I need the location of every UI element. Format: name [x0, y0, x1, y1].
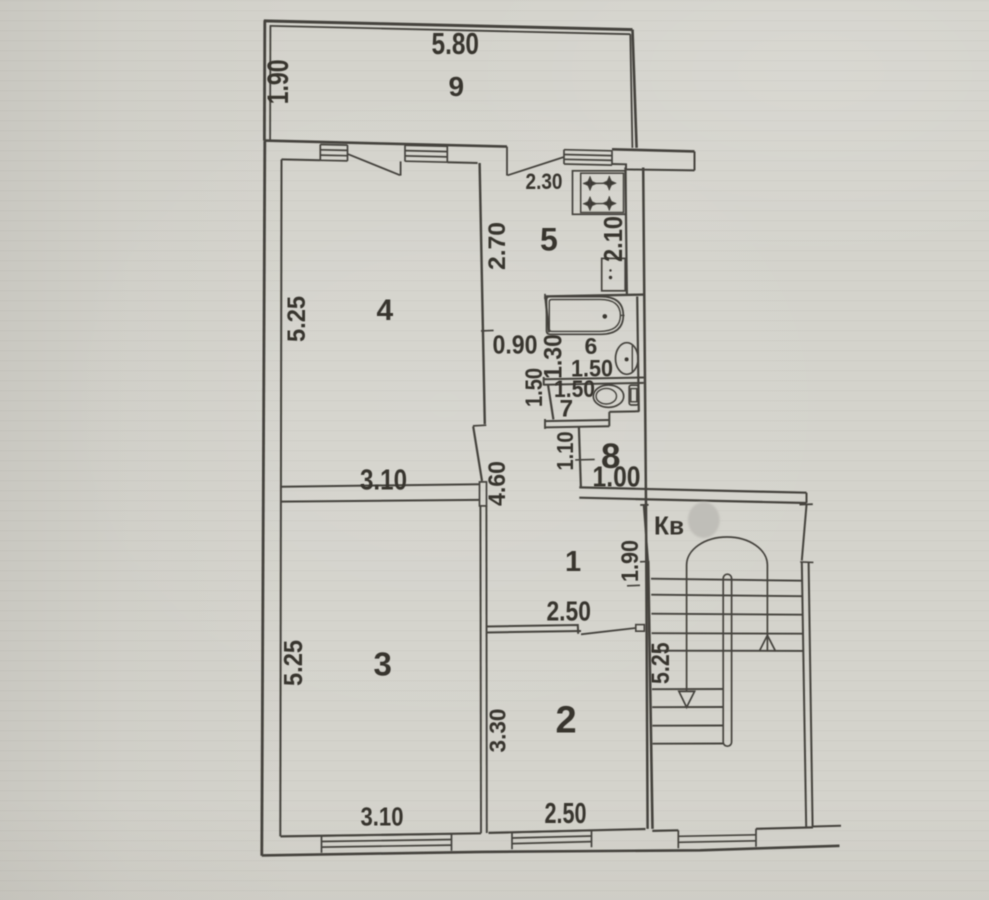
svg-text:2: 2	[556, 700, 577, 742]
svg-text:4: 4	[377, 294, 394, 327]
svg-text:1.50: 1.50	[521, 368, 548, 407]
svg-text:2.10: 2.10	[598, 216, 628, 262]
svg-text:1.00: 1.00	[593, 462, 641, 494]
svg-text:Кв: Кв	[654, 511, 684, 541]
svg-text:2.30: 2.30	[526, 169, 563, 194]
svg-text:3: 3	[374, 646, 392, 683]
svg-text:0.90: 0.90	[493, 330, 538, 360]
svg-text:1.10: 1.10	[552, 432, 578, 471]
svg-text:2.70: 2.70	[484, 222, 511, 270]
svg-text:7: 7	[560, 396, 574, 423]
svg-text:1.90: 1.90	[262, 60, 295, 105]
svg-text:2.50: 2.50	[547, 596, 591, 627]
svg-text:5: 5	[540, 222, 558, 258]
svg-text:1.90: 1.90	[617, 540, 644, 582]
svg-text:2.50: 2.50	[545, 798, 587, 830]
svg-text:5.25: 5.25	[278, 640, 308, 686]
svg-text:3.30: 3.30	[485, 709, 511, 753]
svg-text:5.25: 5.25	[283, 296, 311, 342]
svg-text:5.25: 5.25	[647, 642, 675, 684]
svg-text:5.80: 5.80	[432, 26, 480, 61]
svg-text:3.10: 3.10	[361, 802, 404, 832]
svg-text:3.10: 3.10	[360, 465, 407, 497]
svg-text:4.60: 4.60	[484, 461, 511, 506]
svg-text:1: 1	[565, 546, 581, 578]
svg-text:9: 9	[449, 71, 465, 102]
